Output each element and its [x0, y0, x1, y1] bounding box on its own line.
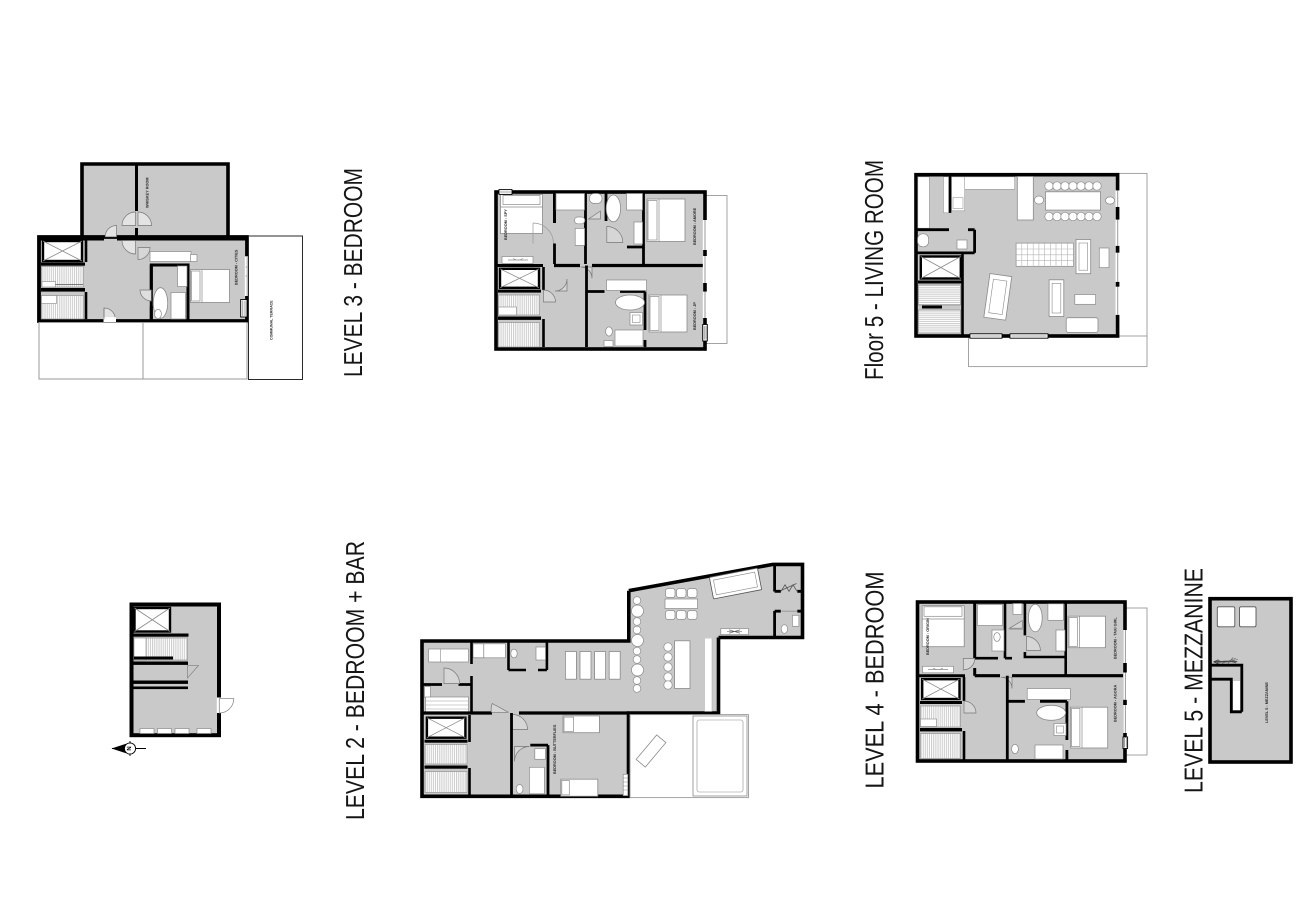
svg-text:Floor 5 - LIVING ROOM: Floor 5 - LIVING ROOM	[859, 160, 889, 380]
svg-text:BEDROOM - AMORE: BEDROOM - AMORE	[693, 207, 697, 245]
svg-text:BEDROOM - CITIES: BEDROOM - CITIES	[235, 249, 239, 285]
svg-text:BEDROOM - ORIGIN: BEDROOM - ORIGIN	[926, 618, 930, 655]
svg-text:BEDROOM - SPY: BEDROOM - SPY	[504, 209, 508, 240]
svg-text:BEDROOM - AGORA: BEDROOM - AGORA	[1114, 685, 1118, 722]
svg-text:LEVEL 3 - BEDROOM: LEVEL 3 - BEDROOM	[338, 168, 368, 377]
svg-text:COMMUNAL TERRACE: COMMUNAL TERRACE	[270, 300, 274, 340]
svg-text:BEDROOM - BUTTERFLIES: BEDROOM - BUTTERFLIES	[553, 724, 557, 774]
svg-text:WHISKEY ROOM: WHISKEY ROOM	[146, 177, 150, 208]
svg-text:LEVEL 5 - MEZZANINE: LEVEL 5 - MEZZANINE	[1179, 568, 1209, 793]
svg-text:N: N	[126, 746, 133, 750]
svg-text:BEDROOM - TAXI GIRL: BEDROOM - TAXI GIRL	[1114, 617, 1118, 659]
svg-text:BEDROOM - JP: BEDROOM - JP	[693, 302, 697, 330]
svg-text:LEVEL 4 - BEDROOM: LEVEL 4 - BEDROOM	[860, 572, 890, 789]
svg-text:LEVEL 5 - MEZZANINE: LEVEL 5 - MEZZANINE	[1265, 682, 1269, 723]
svg-text:LEVEL 2 - BEDROOM + BAR: LEVEL 2 - BEDROOM + BAR	[340, 541, 370, 820]
